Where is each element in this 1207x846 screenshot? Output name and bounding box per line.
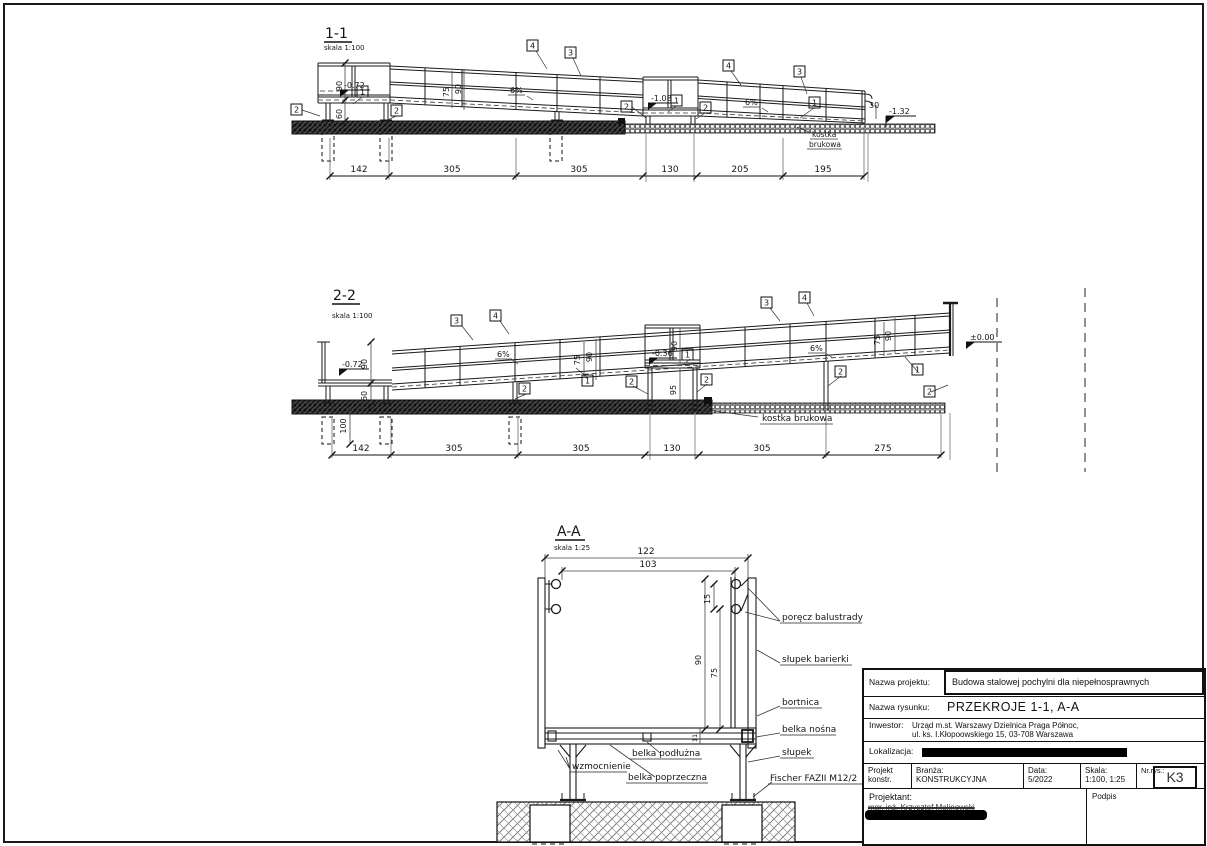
s3-label-handrail: poręcz balustrady bbox=[782, 613, 864, 623]
s2-vdim-90c: 90 bbox=[585, 352, 594, 362]
title-block-designer-row: Projektant: mgr. inż. Krzysztof Malinows… bbox=[864, 789, 1204, 844]
scale-label: Skala: bbox=[1085, 766, 1136, 775]
s2-elev-mid: -0.36 bbox=[652, 349, 673, 358]
s1-extension-lines bbox=[330, 127, 864, 180]
s2-slope: 6% bbox=[810, 344, 823, 353]
s2-structure bbox=[317, 303, 958, 411]
title-block-meta-row: Projekt konstr. Branża: KONSTRUKCYJNA Da… bbox=[864, 764, 1204, 789]
s2-elev-left: -0.72 bbox=[342, 360, 363, 369]
design-cell: Projekt konstr. bbox=[864, 764, 912, 788]
s1-marker-3: 3 bbox=[568, 49, 573, 58]
drawing-number-value: K3 bbox=[1153, 766, 1197, 789]
s2-extension-lines bbox=[332, 414, 941, 458]
s1-vdim-90b: 90 bbox=[454, 84, 463, 94]
s1-vdim-30: 30 bbox=[869, 101, 879, 110]
investor-line2: ul. ks. I.Kłopoowskiego 15, 03-708 Warsz… bbox=[912, 730, 1079, 739]
s2-dim: 142 bbox=[352, 444, 369, 454]
s1-note-line1: kostka bbox=[812, 130, 836, 139]
scale-cell: Skala: 1:100, 1:25 bbox=[1081, 764, 1137, 788]
s1-dim: 205 bbox=[731, 165, 748, 175]
s1-piles bbox=[322, 134, 562, 161]
s1-note-line2: brukowa bbox=[809, 140, 841, 149]
s2-dim: 305 bbox=[572, 444, 589, 454]
s3-dim-122: 122 bbox=[637, 547, 654, 557]
s1-marker-1: 1 bbox=[360, 88, 365, 97]
s2-marker-2: 2 bbox=[522, 385, 527, 394]
s3-dim-90: 90 bbox=[694, 655, 703, 665]
s1-dim: 305 bbox=[570, 165, 587, 175]
s3-label-cross-beam: belka poprzeczna bbox=[628, 773, 707, 783]
investor-label: Inwestor: bbox=[869, 721, 904, 731]
s3-label-anchor: Fischer FAZII M12/2 bbox=[770, 774, 857, 784]
section-a-a-scale: skala 1:25 bbox=[554, 544, 590, 552]
s1-marker-1: 1 bbox=[674, 97, 679, 106]
s1-marker-4: 4 bbox=[726, 62, 731, 71]
s2-dimension-line: 142 305 305 130 305 275 bbox=[329, 444, 945, 459]
s3-label-post: słupek bbox=[782, 748, 812, 758]
date-value: 5/2022 bbox=[1028, 775, 1080, 784]
s3-structure bbox=[538, 577, 756, 800]
s1-dim: 130 bbox=[661, 165, 678, 175]
s3-dim-11: 11 bbox=[691, 734, 699, 742]
s3-label-longitudinal-beam: belka podłużna bbox=[632, 749, 700, 759]
title-block: Nazwa projektu: Budowa stalowej pochylni… bbox=[862, 668, 1206, 846]
s2-marker-1: 1 bbox=[585, 377, 590, 386]
s2-vdim-95: 95 bbox=[669, 385, 678, 395]
scale-value: 1:100, 1:25 bbox=[1085, 775, 1136, 784]
s1-marker-1: 1 bbox=[812, 99, 817, 108]
s3-label-brace: wzmocnienie bbox=[572, 762, 631, 772]
date-cell: Data: 5/2022 bbox=[1024, 764, 1081, 788]
branch-label: Branża: bbox=[916, 766, 1023, 775]
s1-elev-mid: -1.08 bbox=[651, 94, 672, 103]
s1-structure bbox=[318, 63, 872, 124]
s1-markers: 2 1 2 2 1 2 1 4 3 4 3 bbox=[291, 40, 820, 120]
s2-vdim-90d: 90 bbox=[884, 331, 893, 341]
s2-vdim-75: 75 bbox=[573, 355, 582, 365]
s3-label-load-beam: belka nośna bbox=[782, 724, 836, 735]
signature-label: Podpis bbox=[1092, 792, 1116, 801]
s1-marker-2: 2 bbox=[394, 107, 399, 116]
section-1-1: 1-1 skala 1:100 142 305 bbox=[291, 26, 935, 182]
location-redaction-bar bbox=[922, 748, 1127, 757]
project-name-value: Budowa stalowej pochylni dla niepełnospr… bbox=[944, 670, 1204, 695]
section-a-a: A-A skala 1:25 122 103 bbox=[497, 524, 868, 844]
section-2-2: 2-2 skala 1:100 142 3 bbox=[292, 288, 1085, 472]
title-block-location-row: Lokalizacja: bbox=[864, 742, 1204, 764]
s1-marker-2: 2 bbox=[703, 104, 708, 113]
s2-marker-4: 4 bbox=[493, 312, 498, 321]
signature-cell: Podpis bbox=[1087, 789, 1204, 844]
s2-marker-3: 3 bbox=[454, 317, 459, 326]
section-2-2-title: 2-2 bbox=[333, 288, 356, 304]
drawing-number-cell: Nr.rys.: K3 bbox=[1137, 764, 1200, 788]
s2-vdim-60: 60 bbox=[360, 391, 369, 401]
title-block-drawing-row: Nazwa rysunku: PRZEKROJE 1-1, A-A bbox=[864, 697, 1204, 719]
s2-marker-2: 2 bbox=[927, 388, 932, 397]
project-name-label: Nazwa projektu: bbox=[869, 678, 930, 688]
s1-dim: 305 bbox=[443, 165, 460, 175]
s3-label-barrier-post: słupek barierki bbox=[782, 655, 849, 665]
s1-dimension-line: 142 305 305 130 205 195 bbox=[327, 165, 868, 180]
designer-label: Projektant: bbox=[869, 792, 912, 802]
drawing-name-value: PRZEKROJE 1-1, A-A bbox=[947, 700, 1080, 714]
section-1-1-title: 1-1 bbox=[325, 26, 348, 42]
s2-piles bbox=[322, 417, 521, 444]
s3-dim-75: 75 bbox=[710, 668, 719, 678]
branch-value: KONSTRUKCYJNA bbox=[916, 775, 1023, 784]
s2-dim: 305 bbox=[445, 444, 462, 454]
s1-elev-right: -1.32 bbox=[889, 107, 910, 116]
s2-site-boundary-dashed bbox=[997, 288, 1085, 472]
s1-marker-2: 2 bbox=[624, 103, 629, 112]
s2-slope: 6% bbox=[497, 350, 510, 359]
s3-dim-15: 15 bbox=[703, 594, 712, 604]
s2-vdim-100: 100 bbox=[339, 418, 348, 433]
designer-cell: Projektant: mgr. inż. Krzysztof Malinows… bbox=[864, 789, 1087, 844]
design-label: Projekt konstr. bbox=[868, 766, 893, 784]
s1-vdim-75: 75 bbox=[442, 87, 451, 97]
s2-marker-1: 1 bbox=[915, 366, 920, 375]
s2-marker-1: 1 bbox=[685, 351, 690, 360]
designer-redaction-bar bbox=[865, 810, 987, 820]
s2-dim: 275 bbox=[874, 444, 891, 454]
title-block-investor-row: Inwestor: Urząd m.st. Warszawy Dzielnica… bbox=[864, 719, 1204, 742]
drawing-sheet: 1-1 skala 1:100 142 305 bbox=[0, 0, 1207, 846]
section-2-2-scale: skala 1:100 bbox=[332, 312, 373, 320]
s1-marker-3: 3 bbox=[797, 68, 802, 77]
investor-line1: Urząd m.st. Warszawy Dzielnica Praga Pół… bbox=[912, 721, 1079, 730]
s3-side-dims: 90 75 15 11 bbox=[691, 576, 724, 745]
s1-vdim-60: 60 bbox=[335, 109, 344, 119]
drawing-name-label: Nazwa rysunku: bbox=[869, 703, 929, 713]
s2-vdim-75b: 75 bbox=[873, 335, 882, 345]
s2-dim: 130 bbox=[663, 444, 680, 454]
s3-dim-103: 103 bbox=[639, 560, 656, 570]
s1-slope: 6% bbox=[510, 86, 523, 95]
s2-marker-2: 2 bbox=[704, 376, 709, 385]
s2-marker-2: 2 bbox=[629, 378, 634, 387]
s2-marker-4: 4 bbox=[802, 294, 807, 303]
s1-marker-4: 4 bbox=[530, 42, 535, 51]
date-label: Data: bbox=[1028, 766, 1080, 775]
s2-marker-2: 2 bbox=[838, 368, 843, 377]
title-block-project-row: Nazwa projektu: Budowa stalowej pochylni… bbox=[864, 670, 1204, 697]
section-1-1-scale: skala 1:100 bbox=[324, 44, 365, 52]
s2-dim: 305 bbox=[753, 444, 770, 454]
s1-dim: 142 bbox=[350, 165, 367, 175]
location-label: Lokalizacja: bbox=[869, 747, 913, 757]
branch-cell: Branża: KONSTRUKCYJNA bbox=[912, 764, 1024, 788]
s3-label-bortnica: bortnica bbox=[782, 698, 819, 708]
s1-dim: 195 bbox=[814, 165, 831, 175]
s1-slope: 6% bbox=[745, 98, 758, 107]
s2-ground bbox=[292, 397, 945, 414]
s2-note: kostka brukowa bbox=[762, 414, 832, 424]
s2-vertical-dims: 90 60 100 90 95 75 90 75 90 bbox=[339, 318, 895, 448]
s3-ground bbox=[497, 802, 795, 844]
s1-marker-2: 2 bbox=[294, 106, 299, 115]
s2-elev-right: ±0.00 bbox=[970, 333, 995, 342]
s3-labels: poręcz balustrady słupek barierki bortni… bbox=[558, 588, 868, 797]
section-a-a-title: A-A bbox=[557, 524, 581, 540]
s2-marker-3: 3 bbox=[764, 299, 769, 308]
